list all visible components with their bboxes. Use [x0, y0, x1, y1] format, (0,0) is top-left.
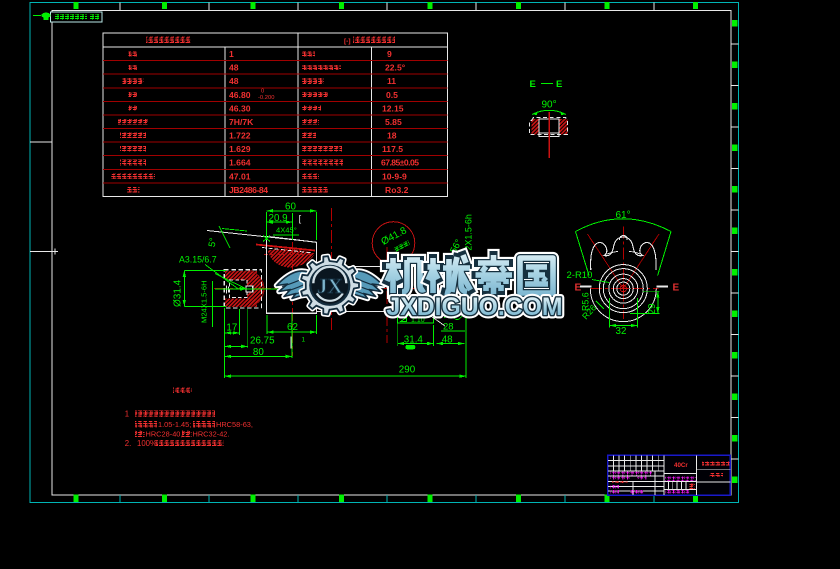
svg-text:46.30: 46.30 [229, 103, 251, 113]
svg-text:67.85±0.05: 67.85±0.05 [381, 158, 419, 168]
svg-text:17: 17 [226, 323, 237, 334]
svg-text:26.75: 26.75 [250, 335, 275, 346]
svg-text:46.80: 46.80 [229, 90, 251, 100]
svg-text:32: 32 [616, 326, 627, 337]
svg-text:0.5: 0.5 [386, 90, 398, 100]
svg-text:90°: 90° [542, 100, 557, 111]
svg-text:290: 290 [399, 364, 416, 375]
svg-text:40Cr: 40Cr [674, 462, 688, 469]
svg-text:2.: 2. [125, 439, 132, 448]
svg-text:E: E [530, 79, 536, 90]
svg-text:JX: JX [317, 274, 343, 298]
svg-text:47.01: 47.01 [229, 171, 251, 181]
svg-text:48: 48 [229, 63, 239, 73]
svg-text:HRC32-42.: HRC32-42. [193, 430, 230, 439]
svg-text:10-9-9: 10-9-9 [382, 171, 407, 181]
svg-text:62: 62 [287, 322, 298, 333]
svg-text:7H/7K: 7H/7K [229, 117, 254, 127]
svg-text:JB2486-84: JB2486-84 [229, 185, 268, 195]
svg-text:A3.15/6.7: A3.15/6.7 [179, 255, 217, 265]
svg-text:2-R10: 2-R10 [567, 270, 593, 281]
svg-text:Ro3.2: Ro3.2 [385, 185, 409, 195]
svg-text:E: E [575, 282, 582, 293]
svg-text:2X1.5-6h: 2X1.5-6h [464, 214, 474, 251]
svg-text:1.664: 1.664 [229, 158, 251, 168]
svg-text:5.85: 5.85 [385, 117, 402, 127]
svg-text:1: 1 [302, 337, 306, 344]
svg-text:HRC58-63,: HRC58-63, [216, 420, 253, 429]
svg-text:61°: 61° [616, 210, 631, 221]
svg-text:0: 0 [261, 89, 264, 95]
svg-text:29: 29 [647, 303, 658, 315]
svg-text:JXDIGUO.COM: JXDIGUO.COM [387, 293, 563, 321]
svg-text:M24X1.5-6H: M24X1.5-6H [200, 280, 209, 323]
svg-text:E: E [556, 79, 562, 90]
svg-text:11: 11 [387, 76, 396, 86]
svg-text:9: 9 [387, 49, 392, 59]
svg-text:1.629: 1.629 [229, 144, 251, 154]
svg-text:1: 1 [125, 410, 129, 419]
svg-text:117.5: 117.5 [382, 144, 403, 154]
svg-text:HRC28-40,: HRC28-40, [146, 430, 183, 439]
svg-text:22.5°: 22.5° [385, 63, 406, 73]
svg-text:E: E [673, 282, 680, 293]
svg-text:12.15: 12.15 [382, 103, 404, 113]
svg-text:100%: 100% [137, 439, 157, 448]
svg-text:18: 18 [387, 131, 397, 141]
svg-text:1.05-1.45;: 1.05-1.45; [158, 420, 191, 429]
svg-text:[-]: [-] [344, 38, 351, 45]
svg-text:1.722: 1.722 [229, 131, 251, 141]
svg-text:-0.200: -0.200 [258, 95, 274, 101]
svg-text:4X45°: 4X45° [276, 225, 297, 234]
svg-text:48: 48 [229, 76, 239, 86]
svg-text:1: 1 [229, 49, 234, 59]
svg-text:Ø31.4: Ø31.4 [173, 279, 184, 307]
